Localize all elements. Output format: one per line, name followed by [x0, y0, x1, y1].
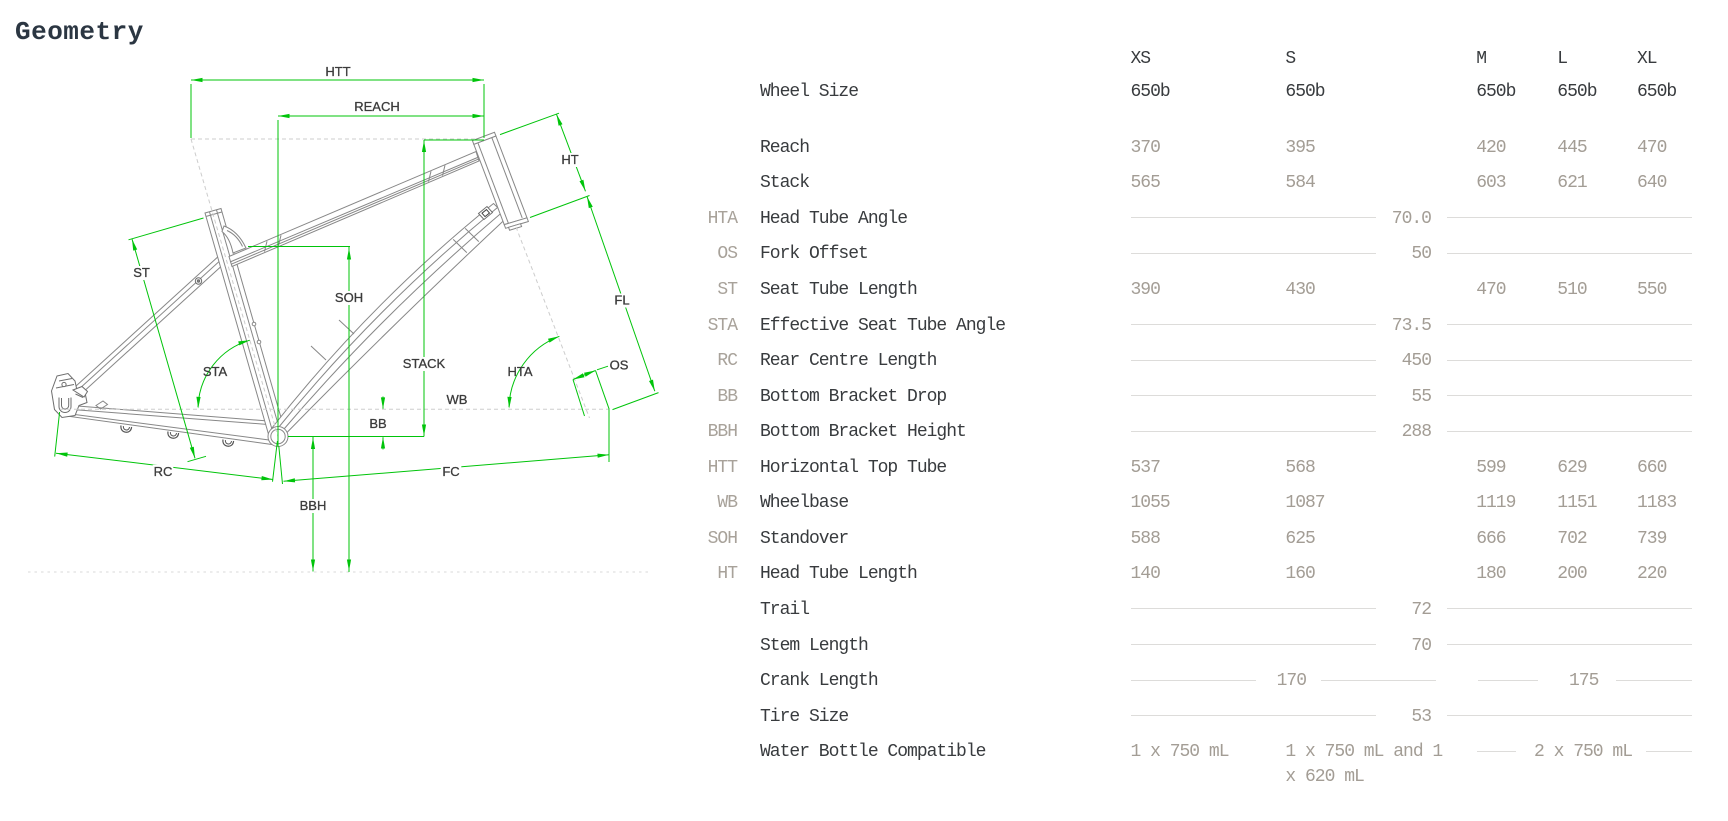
- svg-text:REACH: REACH: [354, 99, 400, 114]
- svg-text:HTT: HTT: [325, 64, 350, 79]
- svg-text:FL: FL: [614, 293, 629, 308]
- svg-text:STACK: STACK: [403, 356, 446, 371]
- svg-text:OS: OS: [610, 357, 629, 372]
- svg-text:STA: STA: [203, 364, 228, 379]
- svg-text:FC: FC: [442, 464, 459, 479]
- svg-text:BB: BB: [369, 416, 386, 431]
- svg-text:WB: WB: [447, 392, 468, 407]
- svg-text:HT: HT: [561, 152, 578, 167]
- svg-text:HTA: HTA: [507, 364, 532, 379]
- svg-text:ST: ST: [133, 265, 150, 280]
- svg-text:RC: RC: [154, 464, 173, 479]
- svg-text:SOH: SOH: [335, 290, 363, 305]
- svg-text:BBH: BBH: [300, 498, 327, 513]
